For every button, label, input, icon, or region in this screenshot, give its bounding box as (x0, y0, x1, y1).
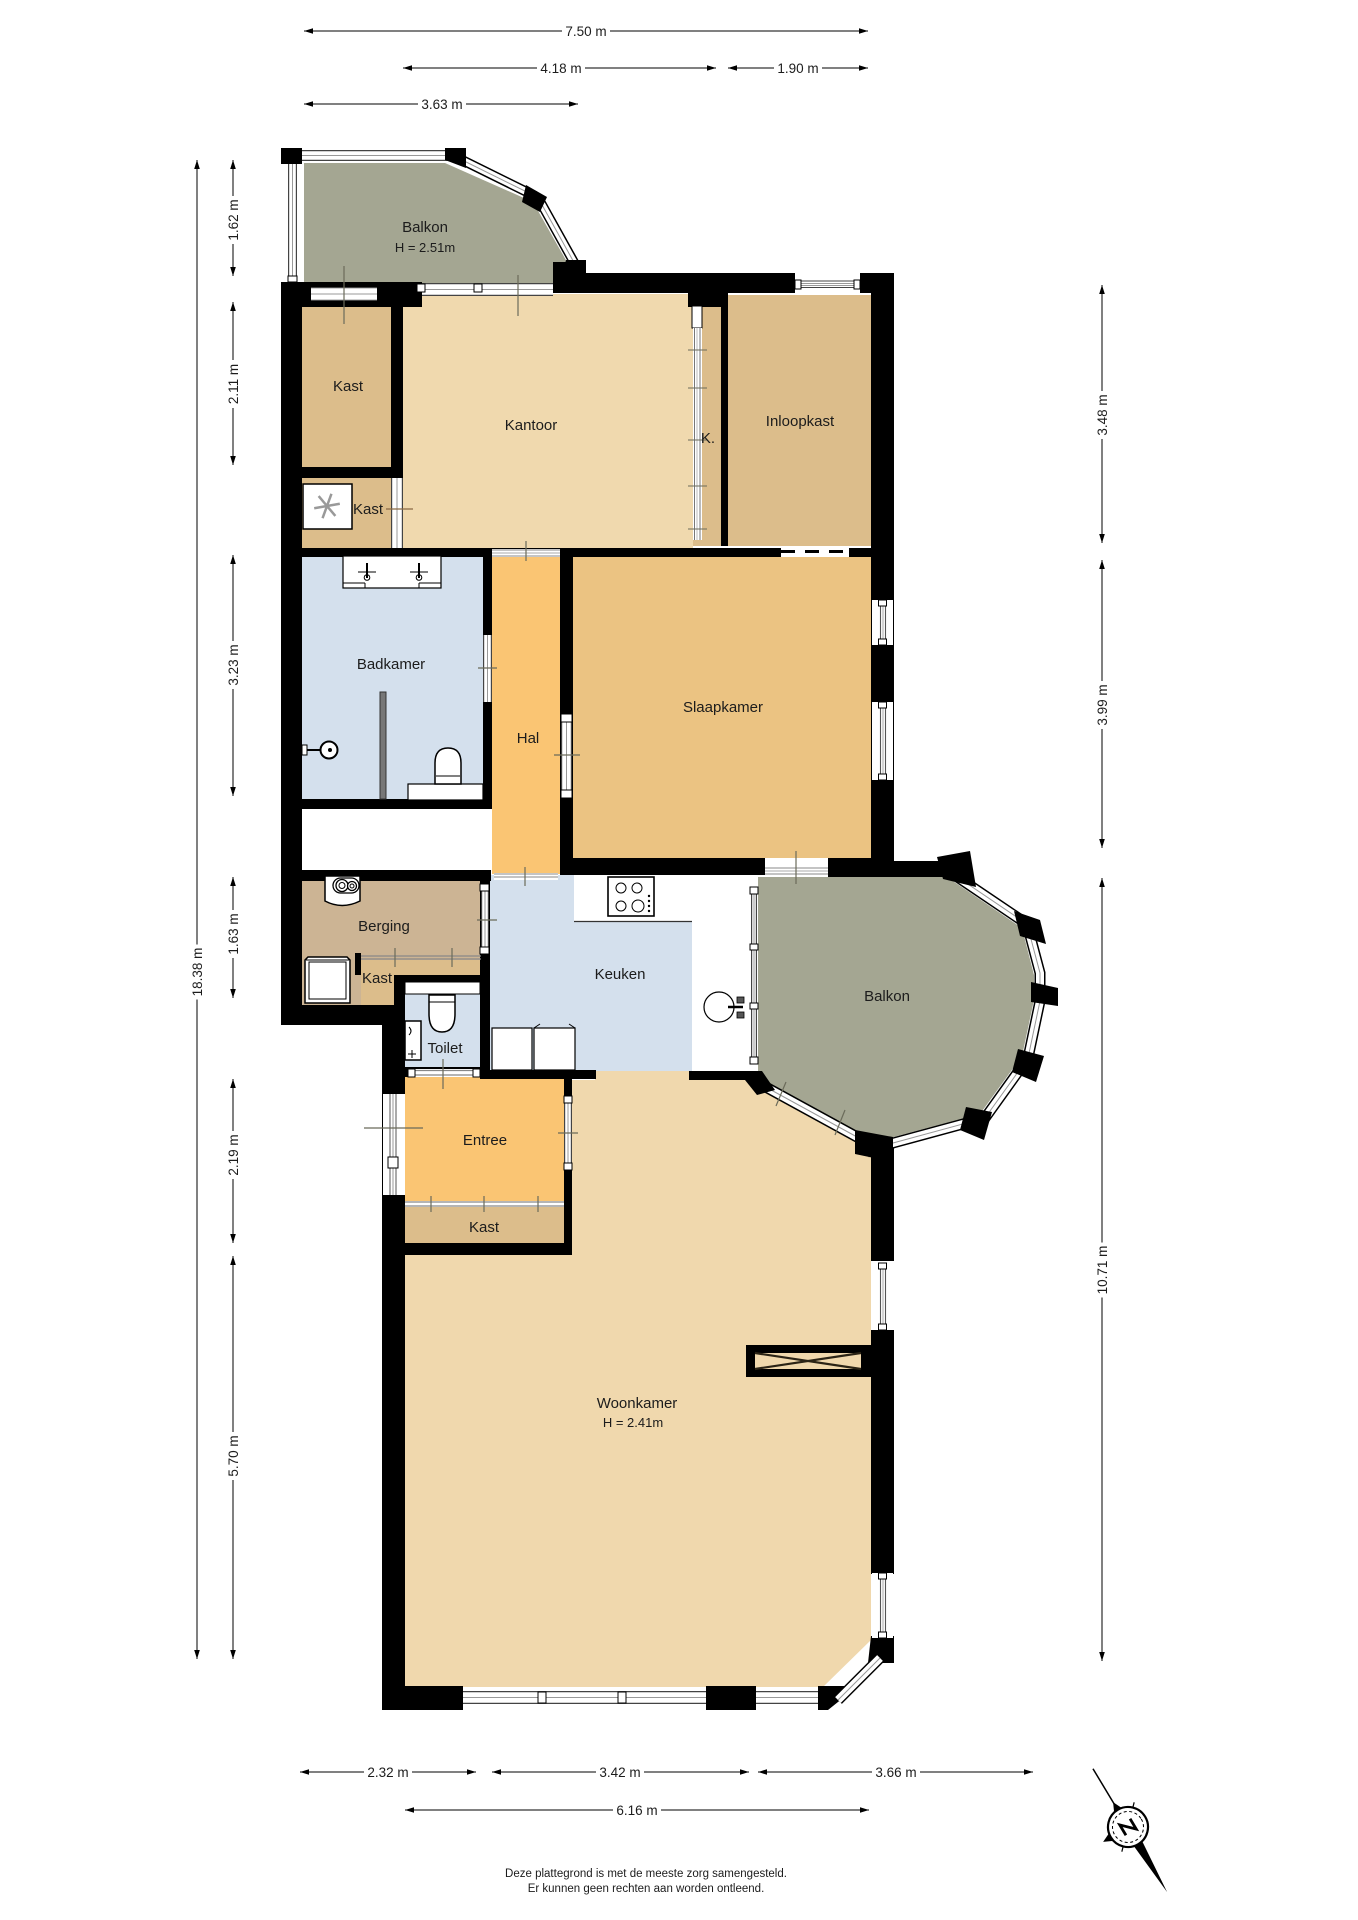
svg-text:K.: K. (701, 430, 715, 447)
svg-text:2.32 m: 2.32 m (367, 1765, 408, 1780)
svg-text:Kast: Kast (333, 378, 364, 395)
svg-text:6.16 m: 6.16 m (616, 1803, 657, 1818)
svg-text:5.70 m: 5.70 m (226, 1435, 241, 1476)
svg-text:Inloopkast: Inloopkast (766, 413, 835, 430)
svg-text:Kast: Kast (353, 501, 384, 518)
svg-text:2.19 m: 2.19 m (226, 1134, 241, 1175)
svg-text:4.18 m: 4.18 m (540, 61, 581, 76)
svg-text:Woonkamer: Woonkamer (597, 1395, 678, 1412)
svg-text:3.66 m: 3.66 m (875, 1765, 916, 1780)
svg-text:Er kunnen geen rechten aan wor: Er kunnen geen rechten aan worden ontlee… (528, 1883, 765, 1895)
svg-text:Entree: Entree (463, 1132, 507, 1149)
svg-text:Keuken: Keuken (595, 966, 646, 983)
svg-text:3.23 m: 3.23 m (226, 644, 241, 685)
svg-text:1.90 m: 1.90 m (777, 61, 818, 76)
svg-text:Kast: Kast (362, 970, 393, 987)
svg-text:Badkamer: Badkamer (357, 656, 425, 673)
svg-text:10.71 m: 10.71 m (1095, 1246, 1110, 1295)
svg-text:2.11 m: 2.11 m (226, 364, 241, 404)
svg-text:18.38 m: 18.38 m (190, 948, 205, 997)
svg-text:Berging: Berging (358, 918, 410, 935)
svg-text:3.63 m: 3.63 m (421, 97, 462, 112)
svg-text:Balkon: Balkon (402, 219, 448, 236)
svg-text:Hal: Hal (517, 730, 540, 747)
svg-text:7.50 m: 7.50 m (565, 24, 606, 39)
svg-text:Toilet: Toilet (427, 1040, 463, 1057)
svg-text:3.99 m: 3.99 m (1095, 684, 1110, 725)
svg-text:Deze plattegrond is met de mee: Deze plattegrond is met de meeste zorg s… (505, 1868, 787, 1880)
svg-text:H = 2.41m: H = 2.41m (603, 1415, 663, 1430)
svg-text:Slaapkamer: Slaapkamer (683, 699, 763, 716)
svg-text:H = 2.51m: H = 2.51m (395, 240, 455, 255)
svg-text:3.42 m: 3.42 m (599, 1765, 640, 1780)
svg-text:1.63 m: 1.63 m (226, 913, 241, 954)
svg-text:3.48 m: 3.48 m (1095, 394, 1110, 435)
svg-text:Kantoor: Kantoor (505, 417, 558, 434)
svg-text:1.62 m: 1.62 m (226, 199, 241, 240)
svg-text:Kast: Kast (469, 1219, 500, 1236)
svg-text:Balkon: Balkon (864, 988, 910, 1005)
